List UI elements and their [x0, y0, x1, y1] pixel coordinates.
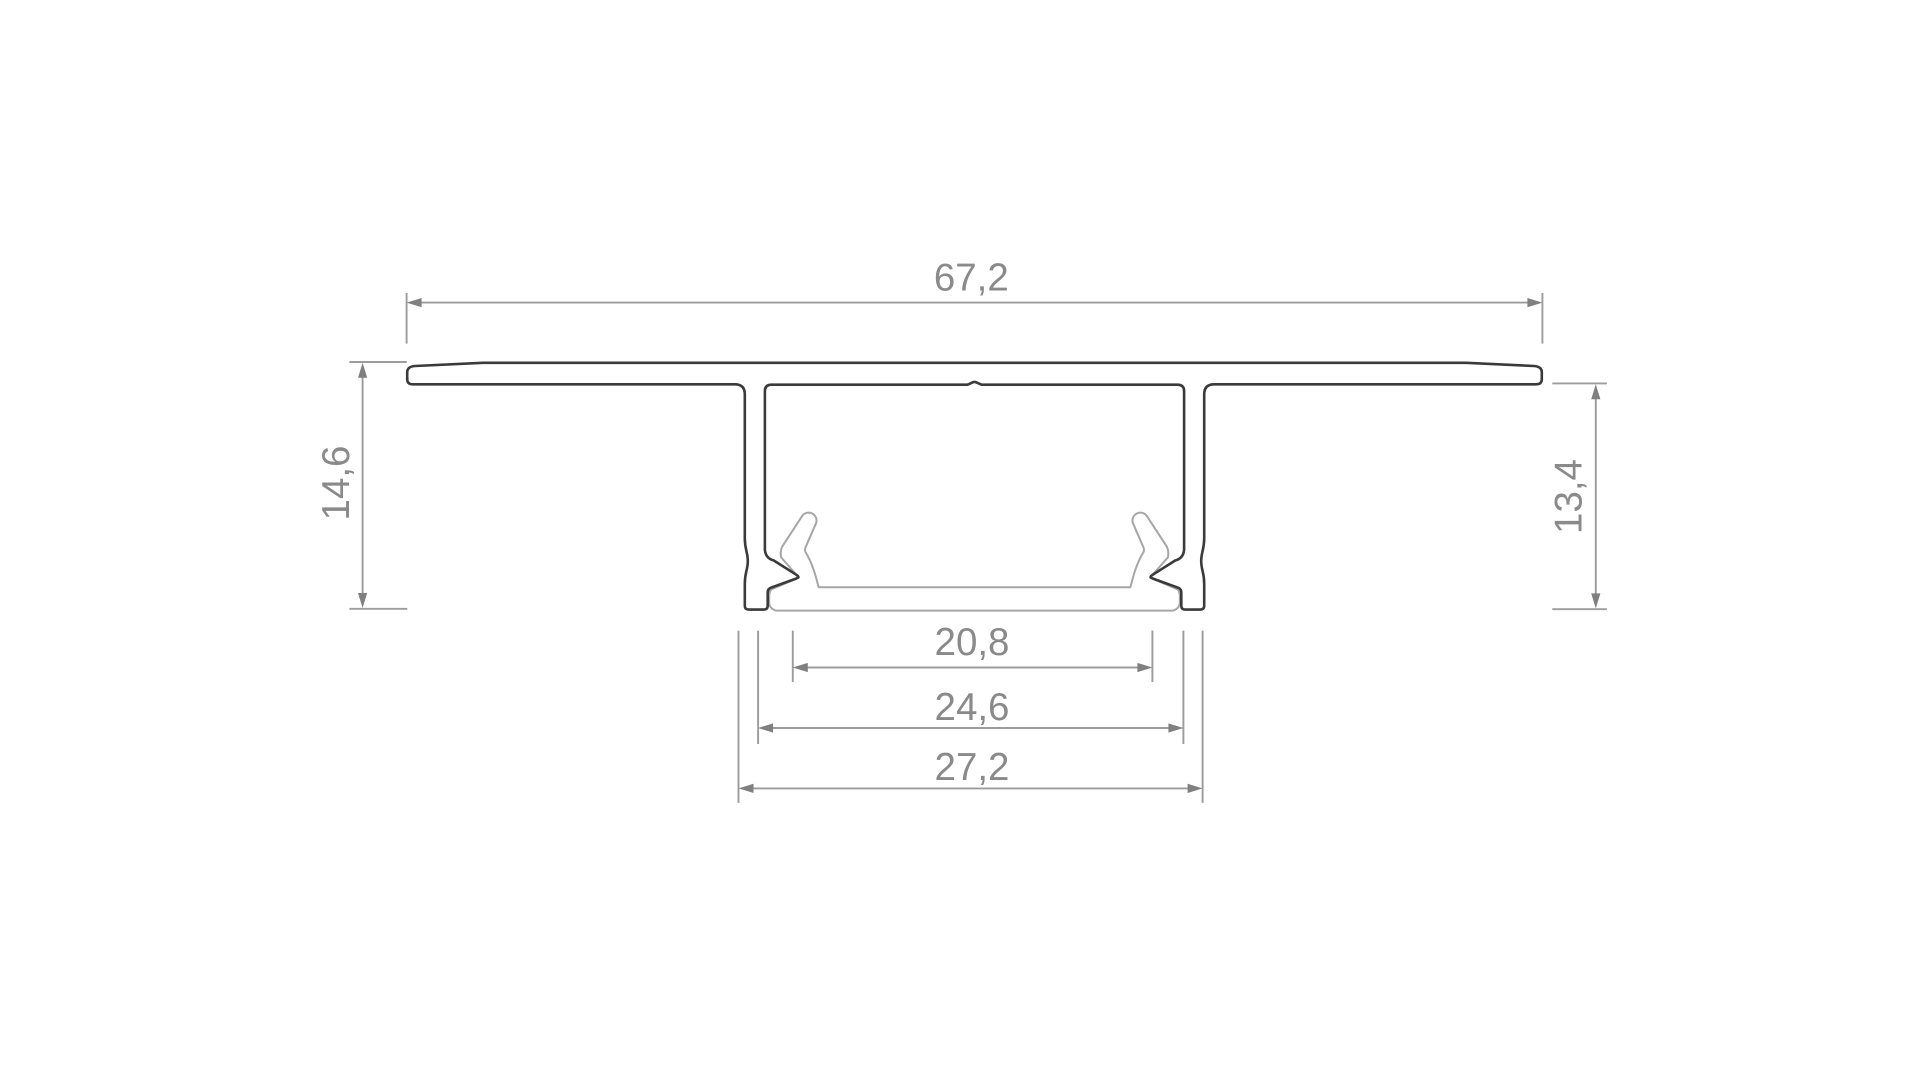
svg-text:14,6: 14,6 [315, 446, 358, 521]
svg-text:27,2: 27,2 [935, 746, 1010, 789]
svg-text:13,4: 13,4 [1548, 459, 1591, 534]
svg-text:20,8: 20,8 [935, 621, 1010, 664]
svg-text:67,2: 67,2 [934, 257, 1009, 300]
svg-text:24,6: 24,6 [935, 686, 1010, 729]
